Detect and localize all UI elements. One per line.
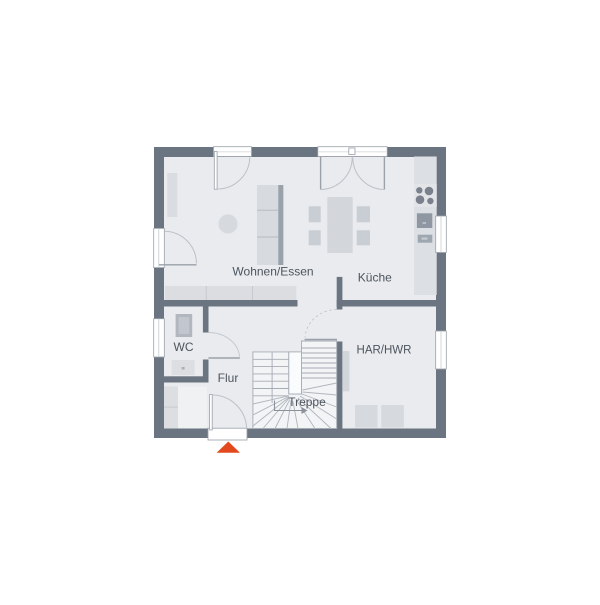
svg-text:Wohnen/Essen: Wohnen/Essen bbox=[232, 265, 313, 279]
svg-text:WC: WC bbox=[174, 340, 194, 354]
svg-text:HAR/HWR: HAR/HWR bbox=[357, 345, 412, 357]
svg-text:Treppe: Treppe bbox=[288, 395, 326, 409]
svg-text:Küche: Küche bbox=[358, 271, 392, 285]
svg-text:Flur: Flur bbox=[218, 371, 239, 385]
